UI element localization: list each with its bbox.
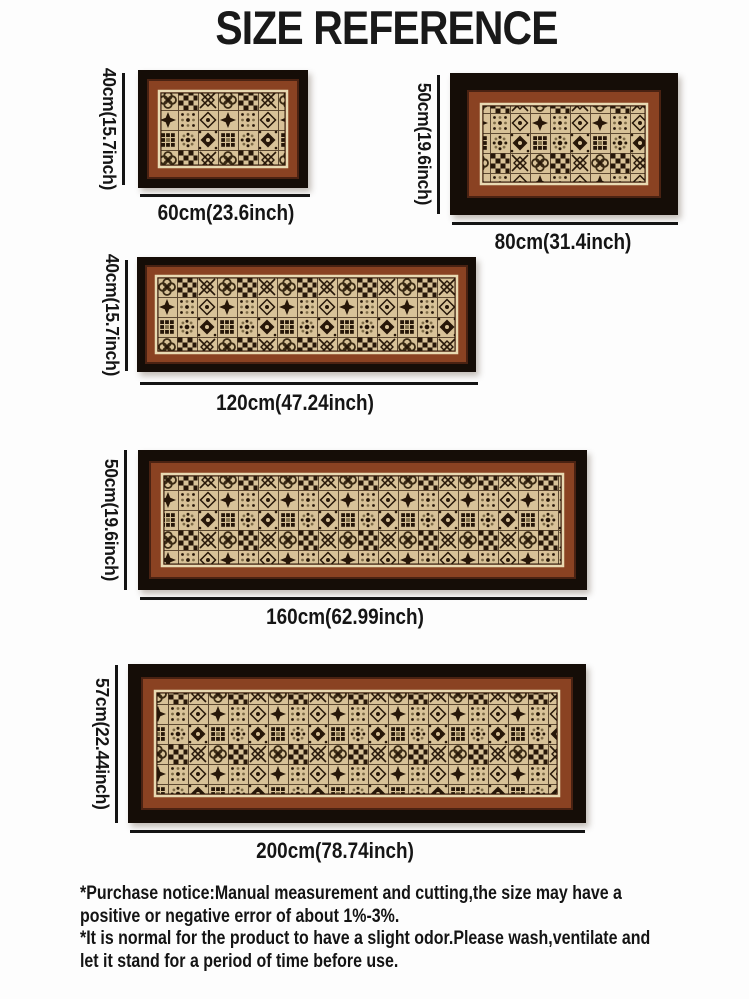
- width-label-rug2: 80cm(31.4inch): [434, 229, 692, 255]
- height-dimension-rug1: 40cm(15.7inch): [93, 61, 125, 197]
- rug-image-80x50: [450, 73, 678, 215]
- rug-image-160x50: [138, 450, 587, 590]
- width-label-rug5: 200cm(78.74inch): [206, 838, 464, 864]
- height-dimension-line-rug2: [437, 75, 440, 214]
- size-reference-infographic: SIZE REFERENCE 40cm(15.7inch) 60cm(23.6i…: [0, 0, 749, 999]
- height-dimension-rug3: 40cm(15.7inch): [96, 255, 128, 375]
- purchase-notice: *Purchase notice:Manual measurement and …: [80, 883, 745, 973]
- notice-line-3: *It is normal for the product to have a …: [80, 928, 639, 951]
- width-dimension-line-rug5: [130, 830, 585, 833]
- height-label-rug5: 57cm(22.44inch): [86, 678, 112, 810]
- rug-graphic-80x50: [450, 73, 678, 215]
- height-label-rug1: 40cm(15.7inch): [93, 68, 119, 190]
- rug-graphic-120x40: [137, 257, 476, 372]
- rug-graphic-60x40: [138, 70, 308, 188]
- height-dimension-line-rug1: [122, 73, 125, 185]
- height-dimension-rug2: 50cm(19.6inch): [408, 72, 440, 216]
- rug-graphic-160x50: [138, 450, 587, 590]
- height-label-rug3: 40cm(15.7inch): [96, 254, 122, 376]
- notice-line-1: *Purchase notice:Manual measurement and …: [80, 883, 639, 906]
- width-label-rug4: 160cm(62.99inch): [216, 604, 474, 630]
- height-label-rug2: 50cm(19.6inch): [408, 83, 434, 205]
- width-label-rug3: 120cm(47.24inch): [166, 390, 424, 416]
- width-label-rug1: 60cm(23.6inch): [97, 200, 355, 226]
- rug-image-200x57: [128, 664, 586, 823]
- width-dimension-line-rug2: [452, 222, 678, 225]
- notice-line-2: positive or negative error of about 1%-3…: [80, 906, 639, 929]
- width-dimension-line-rug1: [140, 194, 310, 197]
- height-label-rug4: 50cm(19.6inch): [95, 459, 121, 581]
- height-dimension-line-rug3: [125, 260, 128, 371]
- height-dimension-line-rug5: [115, 665, 118, 823]
- notice-line-4: let it stand for a period of time before…: [80, 951, 639, 974]
- height-dimension-rug4: 50cm(19.6inch): [95, 447, 127, 593]
- rug-graphic-200x57: [128, 664, 586, 823]
- rug-image-60x40: [138, 70, 308, 188]
- page-title: SIZE REFERENCE: [61, 0, 713, 56]
- width-dimension-line-rug4: [140, 597, 587, 600]
- width-dimension-line-rug3: [140, 382, 478, 385]
- height-dimension-line-rug4: [124, 450, 127, 590]
- rug-image-120x40: [137, 257, 476, 372]
- height-dimension-rug5: 57cm(22.44inch): [86, 663, 118, 825]
